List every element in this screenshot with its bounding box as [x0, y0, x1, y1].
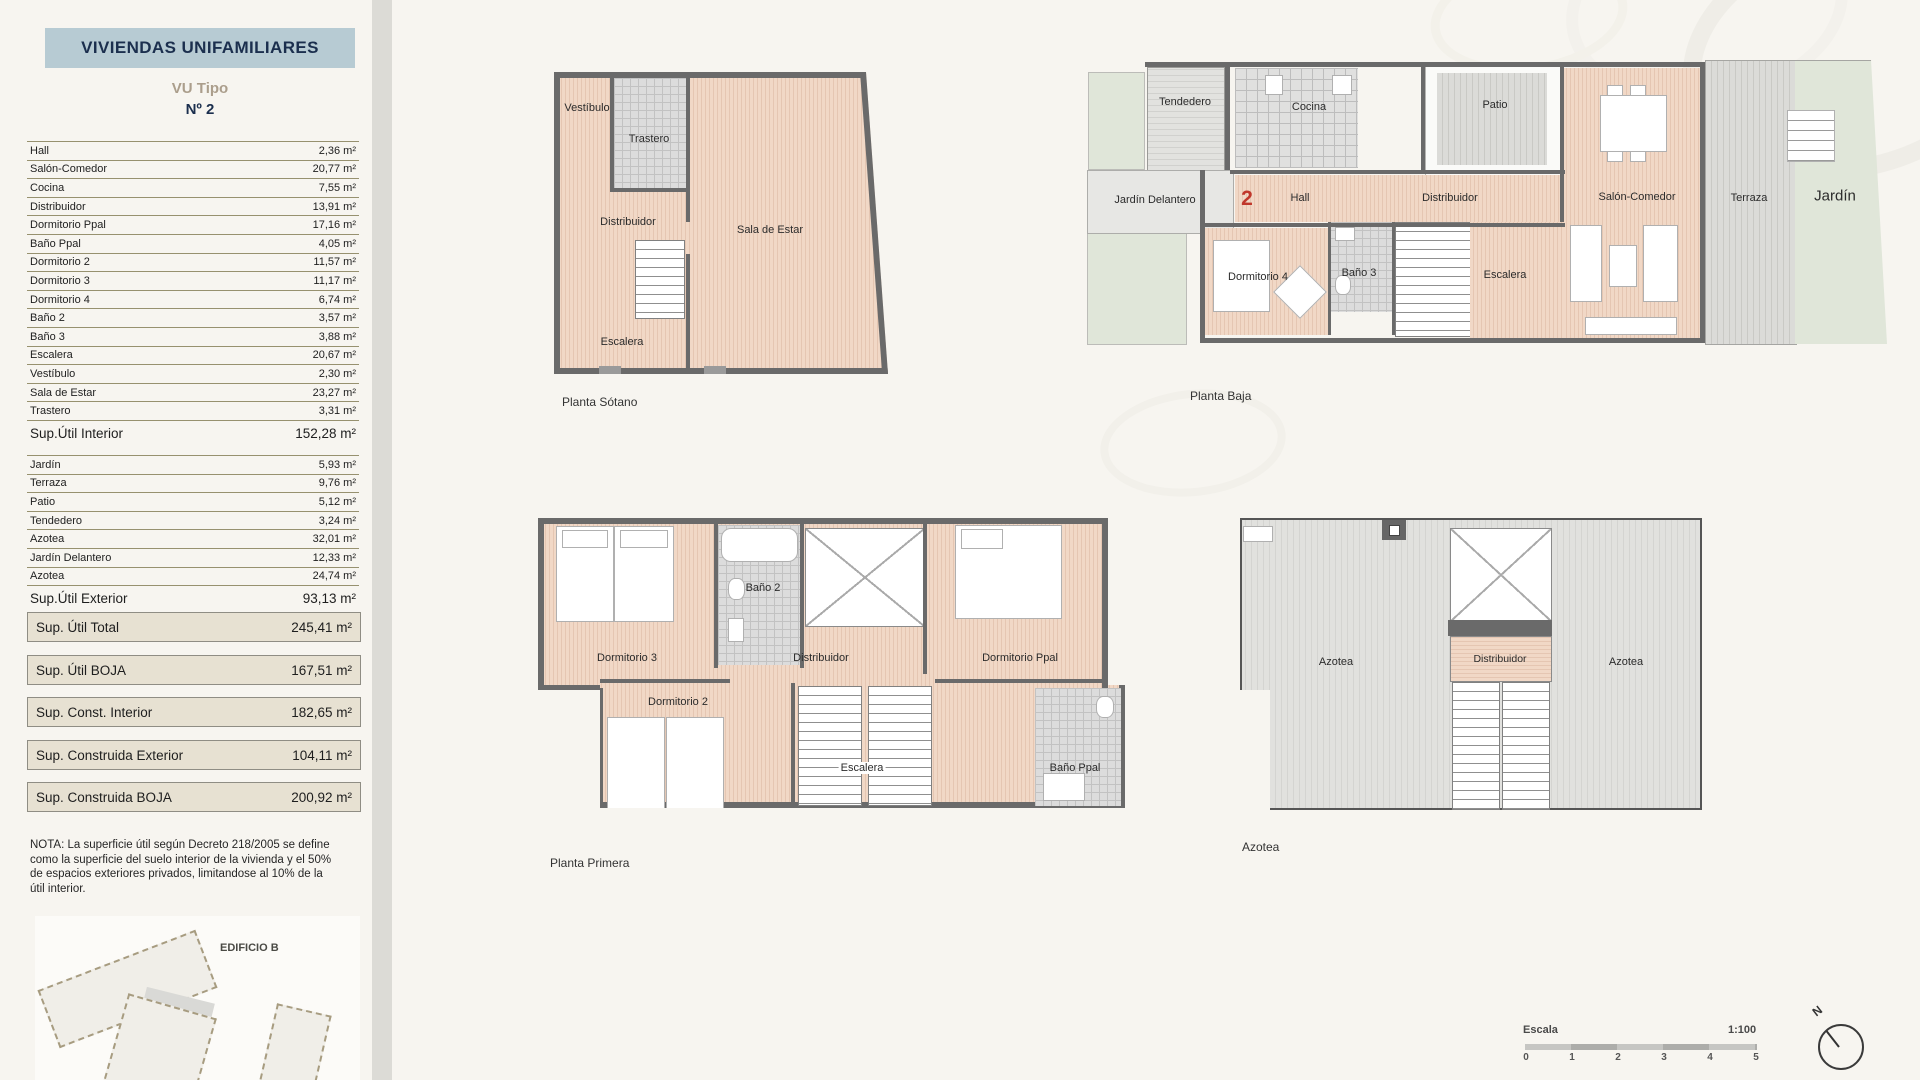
table-row: Dormitorio 311,17 m²: [27, 272, 359, 291]
table-row: Baño 33,88 m²: [27, 328, 359, 347]
room-name: Escalera: [30, 349, 73, 361]
chair: [1630, 85, 1646, 96]
garden-steps: [1787, 110, 1835, 162]
shower-tray: [1043, 773, 1085, 801]
summary-box-construida-exterior: Sup. Construida Exterior104,11 m²: [27, 740, 361, 770]
room-area: 11,17 m²: [313, 275, 356, 287]
room-label-terraza: Terraza: [1731, 192, 1768, 204]
caption-planta-primera: Planta Primera: [550, 856, 629, 870]
door-mark: [704, 366, 726, 374]
room-label-hall: Hall: [1291, 192, 1310, 204]
summary-label: Sup. Útil Total: [36, 620, 119, 635]
site-building-shape: [250, 1003, 331, 1080]
plan-baja: 2 Tendedero Cocina Patio Jardín Delanter…: [1085, 45, 1890, 345]
room-label-escalera: Escalera: [1484, 269, 1527, 281]
room-label-sala-de-estar: Sala de Estar: [737, 224, 803, 236]
scale-tick: 3: [1658, 1052, 1670, 1063]
room-label-cocina: Cocina: [1292, 101, 1326, 113]
room-area: 9,76 m²: [319, 477, 356, 489]
bed: [666, 717, 724, 810]
summary-box-util-total: Sup. Útil Total245,41 m²: [27, 612, 361, 642]
room-area: 2,30 m²: [319, 368, 356, 380]
room-name: Vestíbulo: [30, 368, 75, 380]
room-name: Cocina: [30, 182, 64, 194]
interior-areas-table: Hall2,36 m² Salón-Comedor20,77 m² Cocina…: [27, 141, 359, 445]
table-row: Baño 23,57 m²: [27, 309, 359, 328]
bathroom-sink: [728, 618, 744, 642]
scale-ratio: 1:100: [1728, 1024, 1756, 1036]
table-row: Cocina7,55 m²: [27, 179, 359, 198]
summary-box-util-boja: Sup. Útil BOJA167,51 m²: [27, 655, 361, 685]
room-label-jardin: Jardín: [1814, 188, 1856, 205]
roof-access-box: [1243, 526, 1273, 542]
room-label-bano-2: Baño 2: [746, 582, 781, 594]
chair: [1630, 151, 1646, 162]
total-value: 152,28 m²: [295, 426, 356, 441]
table-row: Hall2,36 m²: [27, 142, 359, 161]
room-label-trastero: Trastero: [629, 133, 670, 145]
room-label-escalera: Escalera: [601, 336, 644, 348]
table-row: Azotea32,01 m²: [27, 530, 359, 549]
skylight-void: [1450, 528, 1552, 622]
room-area: 4,05 m²: [319, 238, 356, 250]
table-row: Distribuidor13,91 m²: [27, 198, 359, 217]
room-area: 3,24 m²: [319, 515, 356, 527]
table-row: Jardín5,93 m²: [27, 456, 359, 475]
room-area: 6,74 m²: [319, 294, 356, 306]
room-name: Dormitorio 4: [30, 294, 90, 306]
room-label-dormitorio-2: Dormitorio 2: [648, 696, 708, 708]
summary-value: 245,41 m²: [291, 620, 352, 635]
room-label-bano-ppal: Baño Ppal: [1050, 762, 1101, 774]
room-name: Distribuidor: [30, 201, 86, 213]
plan-primera: Dormitorio 3 Baño 2 Distribuidor Dormito…: [538, 518, 1128, 812]
table-row: Baño Ppal4,05 m²: [27, 235, 359, 254]
bathroom-sink: [1335, 227, 1355, 241]
table-row: Tendedero3,24 m²: [27, 512, 359, 531]
room-area: 32,01 m²: [313, 533, 356, 545]
room-area: 13,91 m²: [313, 201, 356, 213]
room-name: Tendedero: [30, 515, 82, 527]
scale-tick: 2: [1612, 1052, 1624, 1063]
caption-azotea: Azotea: [1242, 840, 1279, 854]
compass-north-label: N: [1810, 1003, 1825, 1019]
toilet: [1096, 696, 1114, 718]
dining-table: [1600, 95, 1667, 152]
room-name: Dormitorio 2: [30, 256, 90, 268]
unit-type-label: VU Tipo: [45, 80, 355, 97]
summary-label: Sup. Const. Interior: [36, 705, 152, 720]
room-area: 3,31 m²: [319, 405, 356, 417]
table-row: Trastero3,31 m²: [27, 402, 359, 421]
skylight-void: [805, 528, 925, 627]
room-area: 11,57 m²: [313, 256, 356, 268]
scale-tick: 5: [1750, 1052, 1762, 1063]
room-label-distribuidor: Distribuidor: [1422, 192, 1478, 204]
room-name: Terraza: [30, 477, 67, 489]
room-label-tendedero: Tendedero: [1159, 96, 1211, 108]
table-row: Dormitorio 211,57 m²: [27, 254, 359, 273]
table-row: Patio5,12 m²: [27, 493, 359, 512]
room-area: 20,67 m²: [313, 349, 356, 361]
room-label-salon-comedor: Salón-Comedor: [1598, 191, 1675, 203]
room-name: Sala de Estar: [30, 387, 96, 399]
plan-azotea: Azotea Distribuidor Azotea: [1240, 518, 1702, 810]
unit-number-plan: 2: [1241, 187, 1253, 211]
summary-label: Sup. Construida Exterior: [36, 748, 183, 763]
coffee-table: [1609, 245, 1637, 287]
room-name: Azotea: [30, 570, 64, 582]
bathtub: [721, 528, 798, 562]
caption-planta-baja: Planta Baja: [1190, 389, 1251, 403]
unit-number-label: Nº 2: [45, 101, 355, 118]
scale-bar: [1525, 1044, 1757, 1050]
room-name: Hall: [30, 145, 49, 157]
scale-tick: 4: [1704, 1052, 1716, 1063]
scale-label: Escala: [1523, 1024, 1558, 1036]
chair: [1607, 151, 1623, 162]
room-label-azotea-left: Azotea: [1319, 656, 1353, 668]
room-name: Baño 3: [30, 331, 65, 343]
total-value: 93,13 m²: [303, 591, 356, 606]
site-plan: EDIFICIO B: [35, 916, 360, 1080]
room-label-bano-3: Baño 3: [1342, 267, 1377, 279]
room-area: 23,27 m²: [313, 387, 356, 399]
room-label-escalera: Escalera: [839, 762, 886, 774]
room-label-azotea-right: Azotea: [1609, 656, 1643, 668]
room-name: Dormitorio Ppal: [30, 219, 106, 231]
table-row: Vestíbulo2,30 m²: [27, 365, 359, 384]
toilet: [728, 578, 745, 600]
chair: [1607, 85, 1623, 96]
room-name: Baño Ppal: [30, 238, 81, 250]
sofa: [1570, 225, 1602, 302]
room-label-distribuidor: Distribuidor: [600, 216, 656, 228]
room-area: 20,77 m²: [313, 163, 356, 175]
room-label-dormitorio-3: Dormitorio 3: [597, 652, 657, 664]
table-row: Terraza9,76 m²: [27, 475, 359, 494]
total-label: Sup.Útil Exterior: [30, 591, 128, 606]
table-row: Jardín Delantero12,33 m²: [27, 549, 359, 568]
room-name: Salón-Comedor: [30, 163, 107, 175]
kitchen-sink: [1265, 75, 1283, 95]
kitchen-stove: [1332, 75, 1352, 95]
room-area: 7,55 m²: [319, 182, 356, 194]
room-name: Patio: [30, 496, 55, 508]
summary-box-construida-boja: Sup. Construida BOJA200,92 m²: [27, 782, 361, 812]
exterior-total-row: Sup.Útil Exterior93,13 m²: [27, 586, 359, 610]
caption-planta-sotano: Planta Sótano: [562, 395, 637, 409]
table-row: Dormitorio 46,74 m²: [27, 291, 359, 310]
pillow: [620, 530, 668, 548]
room-label-vestibulo: Vestíbulo: [564, 102, 609, 114]
room-name: Azotea: [30, 533, 64, 545]
room-label-jardin-delantero: Jardín Delantero: [1114, 194, 1195, 206]
room-area: 24,74 m²: [313, 570, 356, 582]
summary-value: 200,92 m²: [291, 790, 352, 805]
room-label-distribuidor: Distribuidor: [1473, 653, 1526, 665]
interior-total-row: Sup.Útil Interior152,28 m²: [27, 421, 359, 445]
room-name: Jardín: [30, 459, 61, 471]
room-area: 17,16 m²: [313, 219, 356, 231]
room-label-dormitorio-4: Dormitorio 4: [1228, 271, 1288, 283]
scale-tick: 0: [1520, 1052, 1532, 1063]
room-name: Baño 2: [30, 312, 65, 324]
room-name: Jardín Delantero: [30, 552, 111, 564]
summary-label: Sup. Útil BOJA: [36, 663, 126, 678]
summary-value: 104,11 m²: [292, 748, 352, 763]
pillow: [961, 529, 1003, 549]
summary-value: 182,65 m²: [291, 705, 352, 720]
room-label-distribuidor: Distribuidor: [793, 652, 849, 664]
pillow: [562, 530, 608, 548]
room-area: 12,33 m²: [313, 552, 356, 564]
table-row: Escalera20,67 m²: [27, 347, 359, 366]
summary-value: 167,51 m²: [291, 663, 352, 678]
room-name: Trastero: [30, 405, 71, 417]
room-area: 5,93 m²: [319, 459, 356, 471]
vertical-divider: [372, 0, 392, 1080]
total-label: Sup.Útil Interior: [30, 426, 123, 441]
table-row: Azotea24,74 m²: [27, 568, 359, 587]
summary-label: Sup. Construida BOJA: [36, 790, 172, 805]
site-plan-label: EDIFICIO B: [220, 942, 279, 954]
sheet-title: VIVIENDAS UNIFAMILIARES: [45, 28, 355, 68]
table-row: Dormitorio Ppal17,16 m²: [27, 216, 359, 235]
room-name: Dormitorio 3: [30, 275, 90, 287]
room-label-dormitorio-ppal: Dormitorio Ppal: [982, 652, 1058, 664]
table-row: Salón-Comedor20,77 m²: [27, 161, 359, 180]
summary-box-const-interior: Sup. Const. Interior182,65 m²: [27, 697, 361, 727]
sideboard: [1585, 317, 1677, 335]
room-area: 5,12 m²: [319, 496, 356, 508]
decree-note: NOTA: La superficie útil según Decreto 2…: [30, 838, 332, 897]
table-row: Sala de Estar23,27 m²: [27, 384, 359, 403]
sofa: [1643, 225, 1678, 302]
scale-tick: 1: [1566, 1052, 1578, 1063]
bed: [607, 717, 665, 810]
door-mark: [599, 366, 621, 374]
room-area: 3,88 m²: [319, 331, 356, 343]
room-label-patio: Patio: [1482, 99, 1507, 111]
exterior-areas-table: Jardín5,93 m² Terraza9,76 m² Patio5,12 m…: [27, 455, 359, 610]
room-area: 2,36 m²: [319, 145, 356, 157]
room-area: 3,57 m²: [319, 312, 356, 324]
plan-sotano: Vestíbulo Trastero Distribuidor Sala de …: [554, 72, 888, 374]
